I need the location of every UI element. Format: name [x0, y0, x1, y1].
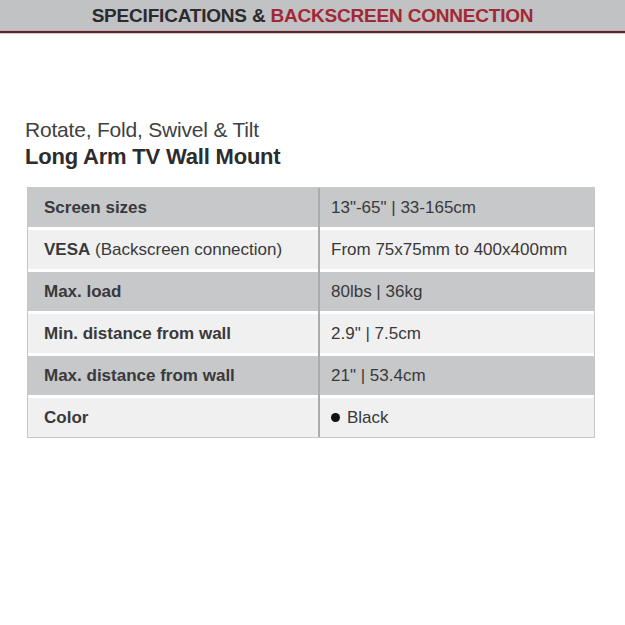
spec-value-text: 13"-65" | 33-165cm — [331, 198, 476, 218]
spec-table: Screen sizes 13"-65" | 33-165cm VESA (Ba… — [27, 187, 595, 438]
spec-label: Min. distance from wall — [28, 314, 318, 353]
spec-value-text: 21" | 53.4cm — [331, 366, 426, 386]
spec-value: 80lbs | 36kg — [318, 272, 594, 311]
column-divider — [318, 188, 320, 437]
product-subtitle: Rotate, Fold, Swivel & Tilt — [25, 116, 281, 143]
spec-label-text: Max. load — [44, 282, 121, 302]
spec-label: Max. load — [28, 272, 318, 311]
header-title-prefix: SPECIFICATIONS & — [92, 5, 271, 26]
spec-label-text: Color — [44, 408, 88, 428]
spec-value: 2.9" | 7.5cm — [318, 314, 594, 353]
spec-row-screen-sizes: Screen sizes 13"-65" | 33-165cm — [28, 188, 594, 227]
spec-value-text: 2.9" | 7.5cm — [331, 324, 421, 344]
product-title: Long Arm TV Wall Mount — [25, 143, 281, 170]
spec-label: Screen sizes — [28, 188, 318, 227]
spec-label: VESA (Backscreen connection) — [28, 230, 318, 269]
header-title-highlight: BACKSCREEN CONNECTION — [271, 5, 534, 26]
spec-sheet-page: SPECIFICATIONS & BACKSCREEN CONNECTION R… — [0, 0, 625, 625]
spec-value: Black — [318, 398, 594, 437]
spec-value-text: Black — [347, 408, 389, 428]
spec-row-max-distance: Max. distance from wall 21" | 53.4cm — [28, 353, 594, 395]
spec-row-min-distance: Min. distance from wall 2.9" | 7.5cm — [28, 311, 594, 353]
spec-label-text: Min. distance from wall — [44, 324, 231, 344]
spec-label: Color — [28, 398, 318, 437]
spec-label-text: Screen sizes — [44, 198, 147, 218]
black-color-dot-icon — [331, 413, 340, 422]
spec-value: 21" | 53.4cm — [318, 356, 594, 395]
spec-value-text: From 75x75mm to 400x400mm — [331, 240, 567, 260]
spec-label-suffix: (Backscreen connection) — [90, 240, 282, 260]
header-bar: SPECIFICATIONS & BACKSCREEN CONNECTION — [0, 0, 625, 31]
spec-label-text: VESA — [44, 240, 90, 260]
spec-row-max-load: Max. load 80lbs | 36kg — [28, 269, 594, 311]
spec-row-vesa: VESA (Backscreen connection) From 75x75m… — [28, 227, 594, 269]
product-titles: Rotate, Fold, Swivel & Tilt Long Arm TV … — [25, 116, 281, 170]
header-underline — [0, 31, 625, 33]
spec-value: 13"-65" | 33-165cm — [318, 188, 594, 227]
spec-value-text: 80lbs | 36kg — [331, 282, 422, 302]
spec-value: From 75x75mm to 400x400mm — [318, 230, 594, 269]
header-title: SPECIFICATIONS & BACKSCREEN CONNECTION — [92, 5, 534, 27]
spec-row-color: Color Black — [28, 395, 594, 437]
spec-label-text: Max. distance from wall — [44, 366, 235, 386]
spec-label: Max. distance from wall — [28, 356, 318, 395]
